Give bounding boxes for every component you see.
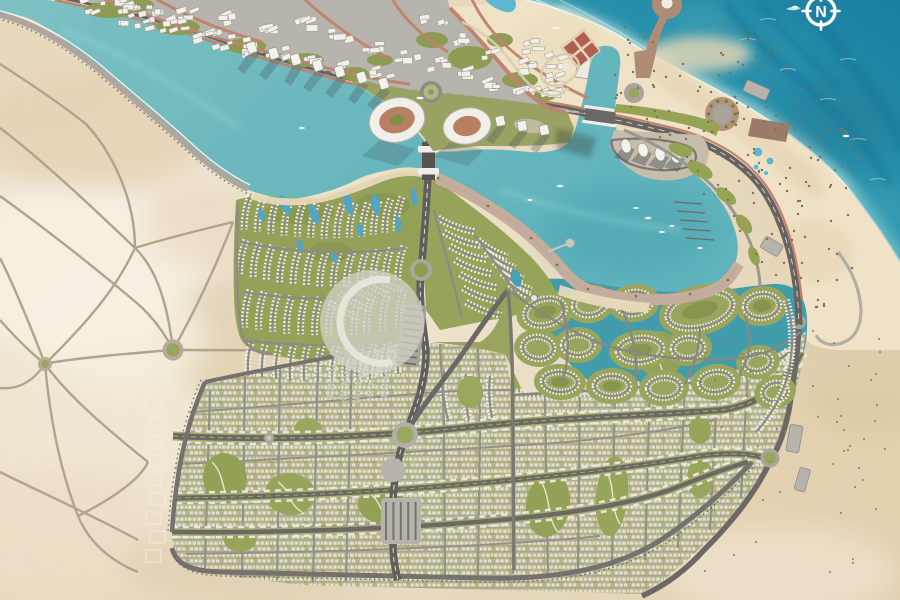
svg-text:N: N: [815, 4, 827, 21]
